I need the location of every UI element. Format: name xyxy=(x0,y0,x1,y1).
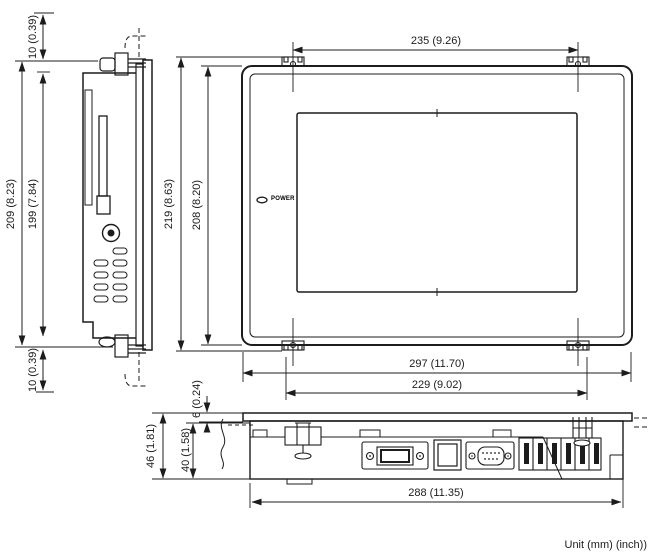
vent-slots xyxy=(94,248,127,302)
drawing-linework xyxy=(0,0,650,558)
mounting-tabs xyxy=(282,42,589,366)
dim-front-panel-height-label: 208 (8.20) xyxy=(191,180,203,230)
dim-bottom-clearance-label: 10 (0.39) xyxy=(27,348,39,392)
side-view xyxy=(83,28,152,386)
dim-bottom-overall-width-label: 288 (11.35) xyxy=(408,487,463,499)
dim-mount-width-bottom-label: 229 (9.02) xyxy=(412,379,462,391)
unit-note: Unit (mm) (inch)) xyxy=(565,539,648,551)
bottom-bezel-edge xyxy=(243,413,632,421)
power-led-icon xyxy=(257,197,267,203)
dim-mount-width-top-label: 235 (9.26) xyxy=(411,35,461,47)
front-view xyxy=(242,42,632,366)
dim-side-body-height-label: 199 (7.84) xyxy=(27,179,39,229)
side-knob xyxy=(103,225,120,242)
bottom-view xyxy=(221,413,650,484)
dim-front-overall-width-label: 297 (11.70) xyxy=(409,358,464,370)
option-port xyxy=(434,440,461,470)
printer-connector xyxy=(362,442,428,469)
dim-bezel-depth-label: 6 (0.24) xyxy=(191,380,203,418)
dim-body-depth-label: 40 (1.58) xyxy=(180,428,192,472)
bottom-left-clamp xyxy=(285,423,321,459)
dim-overall-depth-label: 46 (1.81) xyxy=(145,424,157,468)
power-led-label: POWER xyxy=(271,196,295,202)
serial-connector xyxy=(466,442,514,469)
screen xyxy=(297,113,577,292)
dim-front-overall-height-label: 219 (8.63) xyxy=(163,179,175,229)
front-bezel xyxy=(242,66,632,345)
dim-top-clearance-label: 10 (0.39) xyxy=(27,15,39,59)
side-slot xyxy=(99,116,107,196)
dimension-drawing: 10 (0.39) 209 (8.23) 199 (7.84) 10 (0.39… xyxy=(0,0,650,558)
dim-side-overall-height-label: 209 (8.23) xyxy=(5,179,17,229)
